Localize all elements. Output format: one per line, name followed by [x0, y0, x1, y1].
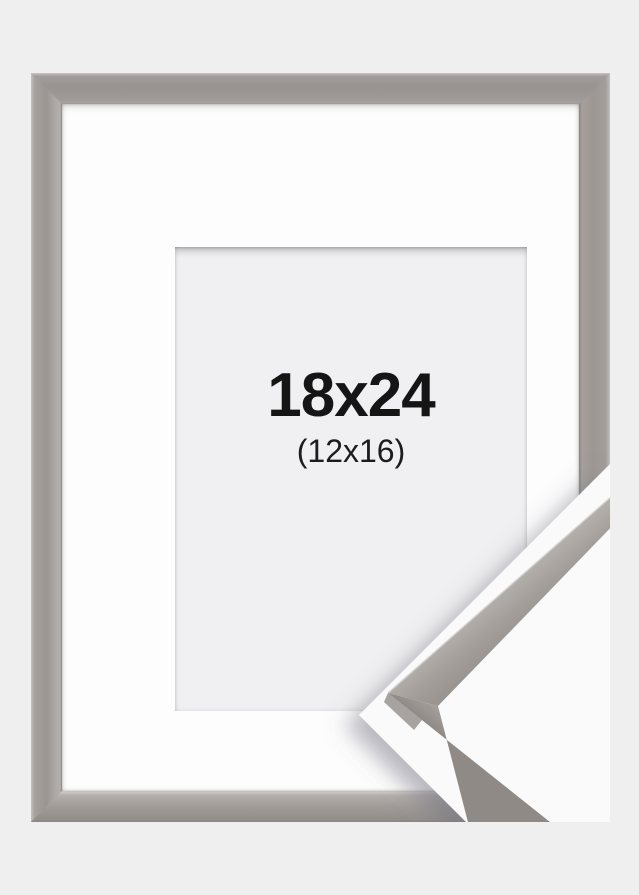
frame-top-moulding: [31, 73, 610, 104]
page-background: 18x24 (12x16): [0, 0, 639, 895]
frame-left-moulding: [31, 73, 62, 822]
frame-right-moulding: [579, 73, 610, 822]
mat-board: 18x24 (12x16): [62, 104, 579, 791]
product-photo[interactable]: 18x24 (12x16): [31, 73, 610, 822]
mat-size-label: (12x16): [175, 435, 527, 467]
frame-size-label: 18x24: [175, 365, 527, 427]
mat-opening: 18x24 (12x16): [175, 247, 527, 711]
frame-bottom-moulding: [31, 791, 610, 822]
